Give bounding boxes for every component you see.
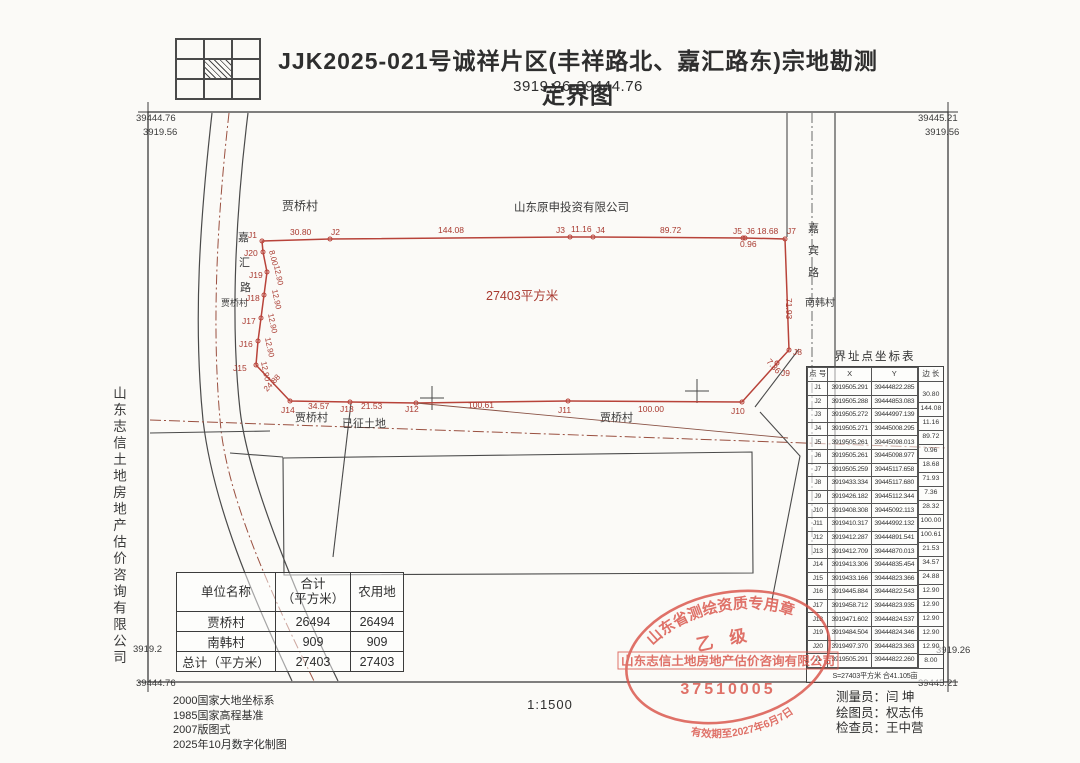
map-label: J15 xyxy=(233,363,247,373)
map-label: 3919.56 xyxy=(143,127,177,138)
coord-y: 39444997.139 xyxy=(871,409,917,423)
datum-note-line: 2000国家大地坐标系 xyxy=(173,694,287,709)
coord-y: 39445112.344 xyxy=(871,490,917,504)
map-label: 0.96 xyxy=(740,239,757,249)
coord-y: 39444870.013 xyxy=(871,545,917,559)
point-id: J10 xyxy=(808,504,828,518)
col-header-point: 点 号 xyxy=(808,368,828,382)
datum-note-line: 2007版图式 xyxy=(173,723,287,738)
map-label: J3 xyxy=(556,225,565,235)
map-label: 39444.76 xyxy=(136,678,176,689)
point-id: J4 xyxy=(808,422,828,436)
coord-y: 39445098.013 xyxy=(871,436,917,450)
staff-name: 权志伟 xyxy=(886,706,924,720)
unit-table-row: 南韩村909909 xyxy=(177,632,404,652)
boundary-point-markers xyxy=(254,235,791,405)
coord-y: 39445092.113 xyxy=(871,504,917,518)
stamp-validity: 有效期至2027年6月7日 xyxy=(687,703,798,748)
point-id: J11 xyxy=(808,518,828,532)
datum-note-line: 2025年10月数字化制图 xyxy=(173,738,287,753)
map-label: J12 xyxy=(405,404,419,414)
map-label: J5 xyxy=(733,226,742,236)
map-label: 30.80 xyxy=(290,227,312,237)
coord-table-row: J83919433.33439445117.680 xyxy=(808,477,918,491)
map-label: 18.68 xyxy=(757,226,779,236)
coord-table-row: J133919412.70939444870.013 xyxy=(808,545,918,559)
map-label: 11.16 xyxy=(571,224,592,234)
point-id: J7 xyxy=(808,463,828,477)
coord-y: 39444824.346 xyxy=(871,626,917,640)
coord-table-row: J113919410.31739444992.132 xyxy=(808,518,918,532)
coord-table-row: J53919505.26139445098.013 xyxy=(808,436,918,450)
map-label: 21.53 xyxy=(361,401,383,411)
map-label: J2 xyxy=(331,227,340,237)
total-area: 909 xyxy=(276,632,351,652)
total-area: 27403 xyxy=(276,652,351,672)
datum-notes: 2000国家大地坐标系1985国家高程基准2007版图式2025年10月数字化制… xyxy=(173,694,287,752)
col-header-length: 边 长 xyxy=(919,367,943,382)
stamp-number: 37510005 xyxy=(680,681,775,698)
map-label: 12.90 xyxy=(270,289,283,311)
map-label: 贾桥村 xyxy=(600,410,633,424)
side-length-value: 89.72 xyxy=(919,431,943,445)
side-length-value: 28.32 xyxy=(919,501,943,515)
coord-y: 39444853.083 xyxy=(871,395,917,409)
map-label: 路 xyxy=(808,266,819,279)
point-id: J8 xyxy=(808,477,828,491)
staff-name: 王中营 xyxy=(886,721,924,735)
side-length-value: 100.61 xyxy=(919,529,943,543)
side-length-value: 0.96 xyxy=(919,445,943,459)
point-id: J9 xyxy=(808,490,828,504)
map-label: 39444.76 xyxy=(136,113,176,124)
staff-name: 闫 坤 xyxy=(886,690,914,704)
side-length-value: 144.08 xyxy=(919,403,943,417)
map-label: J6 xyxy=(746,226,755,236)
side-length-value: 24.88 xyxy=(919,571,943,585)
side-length-value: 12.90 xyxy=(919,599,943,613)
map-label: 3919.56 xyxy=(925,127,959,138)
coord-x: 3919433.334 xyxy=(828,477,871,491)
map-label: 嘉 xyxy=(808,221,819,235)
coord-table-row: J123919412.28739444891.541 xyxy=(808,531,918,545)
field-lines xyxy=(150,349,800,600)
map-label: J10 xyxy=(731,406,745,416)
map-label: J17 xyxy=(242,316,256,326)
map-label: 12.90 xyxy=(266,313,279,335)
col-header-y: Y xyxy=(871,368,917,382)
coord-y: 39444891.541 xyxy=(871,531,917,545)
map-label: J19 xyxy=(249,270,263,280)
coord-y: 39444822.285 xyxy=(871,382,917,396)
coord-y: 39445117.680 xyxy=(871,477,917,491)
coord-x: 3919505.291 xyxy=(828,382,871,396)
coord-y: 39445117.658 xyxy=(871,463,917,477)
side-length-value: 11.16 xyxy=(919,417,943,431)
point-id: J6 xyxy=(808,450,828,464)
coord-x: 3919426.182 xyxy=(828,490,871,504)
coord-x: 3919505.259 xyxy=(828,463,871,477)
coord-x: 3919412.287 xyxy=(828,531,871,545)
map-label: J13 xyxy=(340,404,354,414)
side-length-value: 100.00 xyxy=(919,515,943,529)
coord-table-row: J93919426.18239445112.344 xyxy=(808,490,918,504)
stamp-company: 山东志信土地房地产估价咨询有限公司 xyxy=(621,653,835,668)
coord-y: 39445008.295 xyxy=(871,422,917,436)
map-label: 27403平方米 xyxy=(486,288,559,303)
farmland-col-header: 农用地 xyxy=(351,573,404,612)
total-area: 26494 xyxy=(276,612,351,632)
point-id: J3 xyxy=(808,409,828,423)
map-label: 山东原申投资有限公司 xyxy=(514,200,629,214)
coordinate-table-title: 界址点坐标表 xyxy=(806,348,944,364)
coord-y: 39444835.454 xyxy=(871,558,917,572)
side-length-value: 21.53 xyxy=(919,543,943,557)
stamp-grade: 乙 级 xyxy=(694,624,754,655)
unit-col-header: 单位名称 xyxy=(177,573,276,612)
map-label: J8 xyxy=(793,347,802,357)
datum-note-line: 1985国家高程基准 xyxy=(173,709,287,724)
farmland-area: 909 xyxy=(351,632,404,652)
farmland-area: 27403 xyxy=(351,652,404,672)
coord-table-row: J63919505.26139445098.977 xyxy=(808,450,918,464)
point-id: J5 xyxy=(808,436,828,450)
coord-x: 3919408.308 xyxy=(828,504,871,518)
coord-x: 3919410.317 xyxy=(828,518,871,532)
side-length-value: 12.90 xyxy=(919,585,943,599)
side-length-value: 12.90 xyxy=(919,613,943,627)
map-label: 贾桥村 xyxy=(295,410,328,424)
coord-table-row: J73919505.25939445117.658 xyxy=(808,463,918,477)
map-label: 34.57 xyxy=(308,401,330,411)
side-length-value: 34.57 xyxy=(919,557,943,571)
coord-y: 39444824.537 xyxy=(871,613,917,627)
side-length-value: 8.00 xyxy=(919,655,943,668)
side-length-column: 边 长 30.80144.0811.1689.720.9618.6871.937… xyxy=(918,367,943,668)
unit-area-table: 单位名称 合计 （平方米） 农用地 贾桥村2649426494南韩村909909… xyxy=(176,572,404,672)
unit-name: 贾桥村 xyxy=(177,612,276,632)
coord-x: 3919412.709 xyxy=(828,545,871,559)
coord-y: 39444992.132 xyxy=(871,518,917,532)
coord-y: 39444823.363 xyxy=(871,640,917,654)
coord-table-row: J33919505.27239444997.139 xyxy=(808,409,918,423)
certification-stamp: 山东省测绘资质专用章 乙 级 有效期至2027年6月7日 山东志信土地房地产估价… xyxy=(592,565,864,757)
map-label: 100.00 xyxy=(638,404,664,414)
map-label: 12.90 xyxy=(272,265,285,287)
point-id: J13 xyxy=(808,545,828,559)
map-label: 3919.2 xyxy=(133,644,162,655)
map-label: 89.72 xyxy=(660,225,682,235)
coord-x: 3919505.261 xyxy=(828,436,871,450)
coord-y: 39445098.977 xyxy=(871,450,917,464)
map-label: 贾桥村 xyxy=(282,199,318,213)
farmland-area: 26494 xyxy=(351,612,404,632)
side-length-value: 18.68 xyxy=(919,459,943,473)
coord-table-row: J13919505.29139444822.285 xyxy=(808,382,918,396)
map-label: J18 xyxy=(246,293,260,303)
map-label: 39445.21 xyxy=(918,113,958,124)
side-length-value: 71.93 xyxy=(919,473,943,487)
unit-table-row: 贾桥村2649426494 xyxy=(177,612,404,632)
map-label: 100.61 xyxy=(468,400,494,410)
unit-name: 南韩村 xyxy=(177,632,276,652)
total-col-header: 合计 （平方米） xyxy=(276,573,351,612)
map-label: J4 xyxy=(596,225,605,235)
map-label: J9 xyxy=(781,368,790,378)
side-length-value: 30.80 xyxy=(919,389,943,403)
coord-y: 39444823.935 xyxy=(871,599,917,613)
unit-table-row: 总计（平方米）2740327403 xyxy=(177,652,404,672)
col-header-x: X xyxy=(828,368,871,382)
survey-map-page: JJK2025-021号诚祥片区(丰祥路北、嘉汇路东)宗地勘测定界图 3919.… xyxy=(0,0,1080,763)
map-label: 南韩村 xyxy=(805,296,835,309)
map-label: 贾桥村 xyxy=(221,297,248,308)
coord-x: 3919505.272 xyxy=(828,409,871,423)
point-id: J1 xyxy=(808,382,828,396)
parcel-boundary xyxy=(256,237,789,403)
map-label: J7 xyxy=(787,226,796,236)
unit-name: 总计（平方米） xyxy=(177,652,276,672)
map-label: 12.90 xyxy=(263,337,276,359)
side-length-value: 12.90 xyxy=(919,641,943,655)
point-id: J2 xyxy=(808,395,828,409)
map-label: 宾 xyxy=(808,243,819,257)
coord-x: 3919505.288 xyxy=(828,395,871,409)
map-label: 144.08 xyxy=(438,225,464,235)
coord-y: 39444822.260 xyxy=(871,654,917,668)
side-length-value: 7.36 xyxy=(919,487,943,501)
coord-y: 39444822.543 xyxy=(871,586,917,600)
coord-table-row: J103919408.30839445092.113 xyxy=(808,504,918,518)
coord-x: 3919505.271 xyxy=(828,422,871,436)
map-label: J16 xyxy=(239,339,253,349)
map-label: 已征土地 xyxy=(342,417,386,430)
map-label: J14 xyxy=(281,405,295,415)
map-label: 71.93 xyxy=(784,298,794,320)
point-id: J12 xyxy=(808,531,828,545)
map-label: J20 xyxy=(244,248,258,258)
side-length-value: 12.90 xyxy=(919,627,943,641)
map-label: J11 xyxy=(558,405,571,415)
map-label: J1 xyxy=(248,230,257,240)
coord-x: 3919505.261 xyxy=(828,450,871,464)
coord-y: 39444823.366 xyxy=(871,572,917,586)
coord-table-row: J43919505.27139445008.295 xyxy=(808,422,918,436)
coord-table-row: J23919505.28839444853.083 xyxy=(808,395,918,409)
